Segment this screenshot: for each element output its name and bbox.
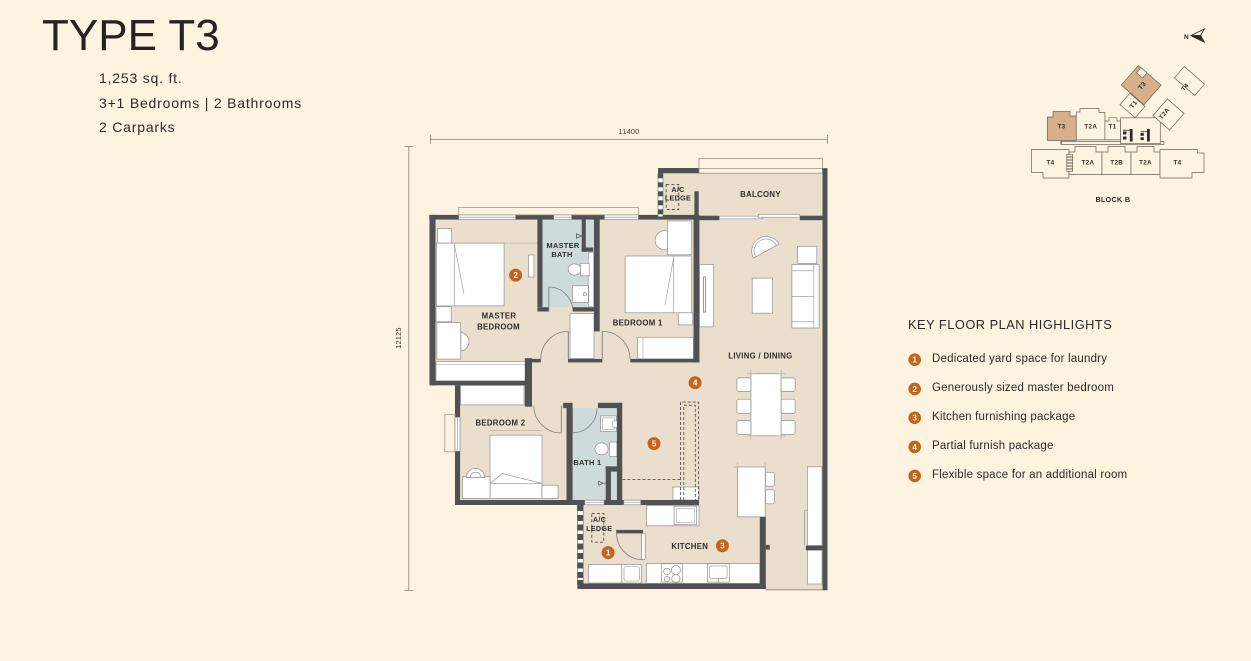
- svg-text:MASTER: MASTER: [482, 311, 517, 320]
- svg-text:T4: T4: [1046, 160, 1054, 167]
- svg-text:LIVING / DINING: LIVING / DINING: [728, 351, 792, 360]
- svg-text:T2A: T2A: [1139, 160, 1152, 167]
- svg-text:N: N: [1184, 34, 1189, 41]
- svg-text:T3: T3: [1058, 124, 1066, 131]
- svg-text:BLOCK B: BLOCK B: [1095, 195, 1130, 204]
- svg-text:3: 3: [720, 542, 725, 551]
- svg-text:1: 1: [606, 549, 611, 558]
- svg-text:LEDGE: LEDGE: [665, 193, 691, 202]
- svg-text:LEDGE: LEDGE: [586, 524, 612, 533]
- svg-text:BALCONY: BALCONY: [740, 190, 781, 199]
- svg-text:5: 5: [912, 472, 917, 481]
- svg-text:BATH: BATH: [551, 250, 572, 259]
- svg-text:BEDROOM 1: BEDROOM 1: [613, 318, 663, 327]
- svg-text:2: 2: [513, 271, 518, 280]
- svg-text:BATH 1: BATH 1: [573, 458, 601, 467]
- svg-text:BEDROOM: BEDROOM: [477, 322, 520, 331]
- svg-text:T2A: T2A: [1084, 124, 1097, 131]
- svg-text:KITCHEN: KITCHEN: [671, 542, 708, 551]
- svg-text:3: 3: [912, 414, 917, 423]
- svg-text:BEDROOM 2: BEDROOM 2: [475, 419, 525, 428]
- svg-text:12125: 12125: [394, 327, 403, 349]
- svg-text:4: 4: [912, 443, 917, 452]
- svg-text:MASTER: MASTER: [546, 241, 579, 250]
- svg-text:4: 4: [693, 379, 698, 388]
- svg-text:T4: T4: [1174, 160, 1182, 167]
- svg-text:T2A: T2A: [1082, 160, 1095, 167]
- svg-text:T1: T1: [1109, 124, 1117, 131]
- svg-text:5: 5: [652, 440, 657, 449]
- svg-text:1: 1: [912, 356, 917, 365]
- svg-text:2: 2: [912, 385, 917, 394]
- svg-text:T2B: T2B: [1110, 160, 1123, 167]
- svg-text:11400: 11400: [619, 127, 640, 136]
- svg-text:A/C: A/C: [593, 515, 606, 524]
